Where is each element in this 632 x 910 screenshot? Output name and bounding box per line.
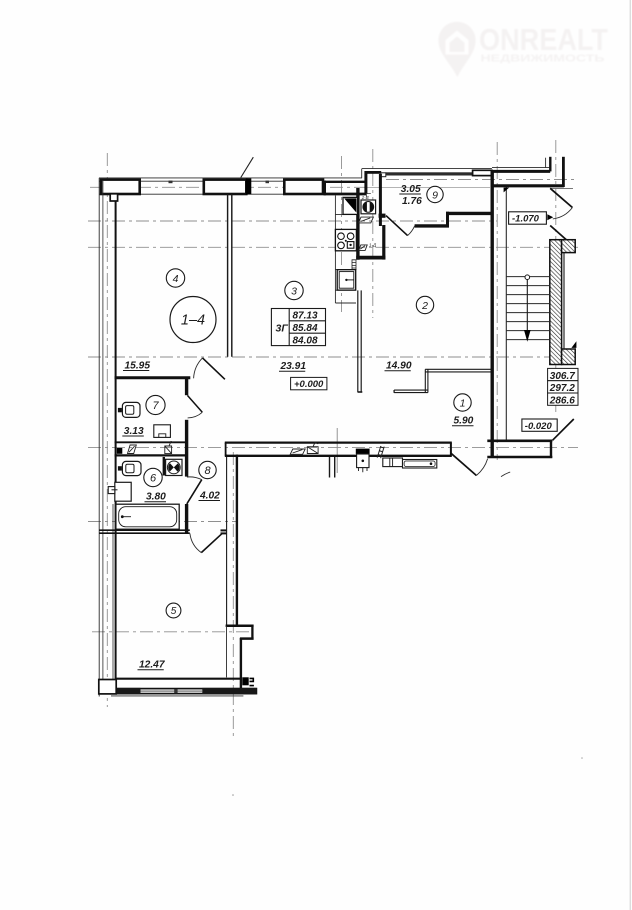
svg-text:5.90: 5.90: [454, 416, 474, 427]
svg-text:15.95: 15.95: [125, 360, 151, 371]
svg-text:14.90: 14.90: [386, 361, 412, 372]
svg-text:4.02: 4.02: [199, 490, 220, 501]
svg-text:2: 2: [421, 300, 428, 312]
svg-text:1–4: 1–4: [181, 313, 205, 329]
svg-text:286.6: 286.6: [549, 396, 575, 407]
svg-text:3.80: 3.80: [146, 492, 166, 503]
svg-text:8: 8: [204, 465, 211, 477]
svg-text:87.13: 87.13: [293, 311, 318, 322]
svg-text:6: 6: [150, 472, 157, 484]
svg-text:85.84: 85.84: [293, 323, 318, 334]
svg-text:9: 9: [432, 189, 438, 201]
svg-text:23.91: 23.91: [280, 361, 307, 372]
svg-text:7: 7: [152, 400, 159, 412]
svg-text:3Г: 3Г: [276, 323, 289, 335]
svg-text:1: 1: [460, 397, 466, 409]
svg-text:1-В: 1-В: [362, 195, 369, 200]
svg-text:84.08: 84.08: [293, 335, 318, 346]
svg-text:12.47: 12.47: [139, 660, 166, 671]
svg-text:297.2: 297.2: [549, 383, 575, 394]
svg-text:НЕДВИЖИМОСТЬ: НЕДВИЖИМОСТЬ: [481, 53, 606, 65]
svg-text:3.05: 3.05: [401, 184, 421, 195]
svg-text:+0.000: +0.000: [294, 379, 324, 390]
svg-text:-1.070: -1.070: [512, 214, 540, 225]
svg-text:5: 5: [171, 606, 177, 617]
svg-text:3.13: 3.13: [124, 426, 144, 437]
svg-text:3: 3: [291, 285, 297, 297]
svg-text:1.76: 1.76: [402, 196, 422, 207]
svg-text:1-Д: 1-Д: [369, 242, 377, 247]
svg-text:306.7: 306.7: [550, 371, 575, 382]
svg-text:4: 4: [173, 273, 179, 285]
svg-text:-0.020: -0.020: [525, 421, 553, 432]
